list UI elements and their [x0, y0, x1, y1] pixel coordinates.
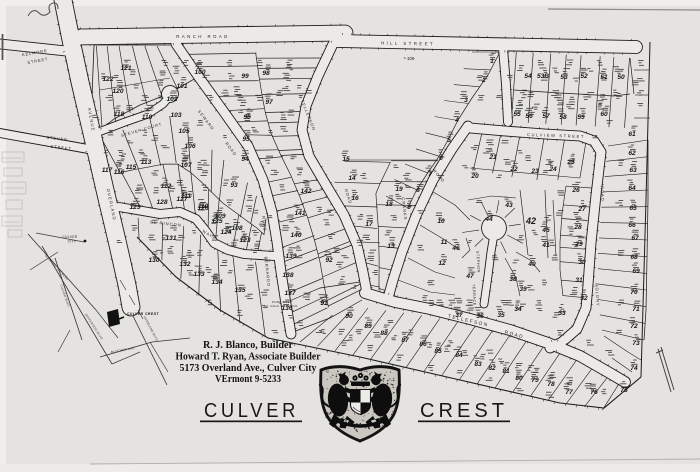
svg-text:103: 103	[170, 112, 181, 119]
svg-text:42: 42	[525, 216, 536, 226]
svg-text:35: 35	[497, 312, 505, 319]
svg-text:40: 40	[527, 261, 536, 268]
svg-text:33: 33	[558, 310, 566, 317]
svg-text:89: 89	[364, 323, 372, 330]
svg-text:26: 26	[571, 187, 580, 194]
svg-text:126: 126	[197, 205, 208, 212]
svg-text:38: 38	[509, 276, 517, 283]
svg-text:118: 118	[114, 111, 125, 118]
svg-text:139: 139	[285, 253, 296, 260]
svg-text:117: 117	[102, 167, 113, 174]
svg-text:27: 27	[577, 206, 586, 213]
svg-text:45: 45	[541, 227, 550, 234]
svg-text:70: 70	[630, 289, 638, 296]
svg-text:7: 7	[428, 171, 432, 178]
svg-text:8: 8	[416, 187, 420, 194]
svg-text:105: 105	[178, 128, 189, 135]
svg-text:132: 132	[179, 261, 190, 268]
svg-text:58: 58	[559, 114, 567, 121]
svg-text:99: 99	[241, 73, 249, 80]
svg-text:50: 50	[617, 74, 625, 81]
svg-text:HILL STREET: HILL STREET	[381, 41, 435, 47]
svg-text:9: 9	[407, 204, 411, 211]
svg-text:16: 16	[351, 195, 359, 202]
svg-text:65: 65	[629, 205, 637, 212]
svg-text:59: 59	[577, 114, 585, 121]
svg-text:CULVER: CULVER	[62, 235, 77, 239]
svg-text:127: 127	[176, 196, 187, 203]
svg-text:97: 97	[265, 99, 273, 106]
svg-text:88: 88	[380, 330, 388, 337]
svg-text:*-109: *-109	[404, 56, 415, 61]
svg-text:6: 6	[439, 155, 443, 162]
svg-text:54: 54	[524, 73, 532, 80]
svg-text:108: 108	[231, 225, 242, 232]
svg-text:121: 121	[120, 65, 131, 72]
svg-text:Howard T. Ryan, Associate Buil: Howard T. Ryan, Associate Builder	[176, 352, 321, 363]
svg-text:101: 101	[176, 83, 187, 90]
svg-text:115: 115	[126, 164, 137, 171]
svg-text:14: 14	[348, 175, 356, 182]
svg-text:VErmont 9-5233: VErmont 9-5233	[215, 374, 281, 385]
svg-text:131: 131	[165, 235, 176, 242]
svg-text:28: 28	[573, 224, 582, 231]
svg-text:57: 57	[542, 113, 550, 120]
svg-text:34: 34	[514, 306, 522, 313]
svg-text:137: 137	[284, 290, 295, 297]
svg-text:77: 77	[565, 389, 573, 396]
svg-text:CITY: CITY	[68, 240, 77, 244]
svg-text:52: 52	[580, 73, 588, 80]
svg-text:106: 106	[184, 143, 195, 150]
svg-text:78: 78	[547, 381, 555, 388]
svg-text:67: 67	[631, 235, 639, 242]
svg-text:80: 80	[515, 375, 523, 382]
svg-text:39: 39	[519, 286, 527, 293]
svg-text:107: 107	[180, 162, 191, 169]
svg-text:32: 32	[580, 295, 588, 302]
svg-text:18: 18	[385, 201, 393, 208]
svg-text:47: 47	[465, 273, 474, 280]
svg-text:93: 93	[230, 182, 238, 189]
svg-text:62: 62	[628, 150, 636, 157]
svg-text:98: 98	[262, 70, 270, 77]
svg-text:19: 19	[395, 186, 403, 193]
svg-text:11: 11	[441, 239, 448, 246]
svg-text:1: 1	[490, 58, 494, 65]
svg-text:56: 56	[525, 113, 533, 120]
svg-text:43: 43	[504, 202, 513, 209]
svg-text:CULVER: CULVER	[204, 400, 299, 422]
svg-text:10: 10	[437, 218, 445, 225]
svg-text:31: 31	[575, 277, 583, 284]
svg-text:96: 96	[243, 114, 251, 121]
svg-text:91: 91	[320, 300, 328, 307]
svg-text:66: 66	[628, 222, 636, 229]
svg-text:CREST: CREST	[420, 400, 508, 422]
svg-text:112: 112	[161, 183, 172, 190]
svg-text:83: 83	[474, 361, 482, 368]
svg-text:SO. CALIF. WATER CO.: SO. CALIF. WATER CO.	[264, 304, 299, 308]
svg-text:24: 24	[548, 166, 557, 173]
svg-text:85: 85	[434, 348, 442, 355]
svg-text:128: 128	[156, 199, 167, 206]
svg-text:123: 123	[239, 237, 250, 244]
svg-text:63: 63	[629, 167, 637, 174]
svg-text:140: 140	[290, 232, 301, 239]
svg-text:129: 129	[129, 204, 140, 211]
svg-text:64: 64	[628, 185, 636, 192]
svg-text:72: 72	[630, 323, 638, 330]
svg-text:23: 23	[530, 168, 539, 175]
svg-text:73: 73	[632, 340, 640, 347]
svg-text:3: 3	[464, 97, 468, 104]
svg-text:124: 124	[220, 229, 231, 236]
svg-text:20: 20	[470, 173, 479, 180]
svg-text:53B: 53B	[537, 73, 549, 80]
svg-text:21: 21	[488, 154, 497, 161]
svg-text:29: 29	[574, 241, 583, 248]
svg-text:134: 134	[211, 279, 222, 286]
svg-text:119: 119	[142, 114, 153, 121]
svg-text:4: 4	[454, 117, 459, 124]
svg-text:22: 22	[509, 166, 518, 173]
svg-text:122: 122	[102, 76, 113, 83]
svg-text:130: 130	[148, 257, 159, 264]
svg-text:142: 142	[300, 188, 311, 195]
svg-text:76: 76	[590, 389, 598, 396]
svg-text:92: 92	[325, 257, 333, 264]
svg-text:46: 46	[451, 245, 460, 252]
svg-text:71: 71	[632, 306, 640, 313]
svg-text:79: 79	[531, 377, 539, 384]
svg-text:74: 74	[630, 365, 638, 372]
svg-text:94: 94	[241, 156, 249, 163]
svg-text:133: 133	[193, 271, 204, 278]
svg-text:95: 95	[242, 136, 250, 143]
svg-text:75: 75	[620, 387, 628, 394]
svg-text:RANCH ROAD: RANCH ROAD	[176, 34, 230, 39]
svg-text:53: 53	[560, 74, 568, 81]
svg-text:61: 61	[628, 131, 636, 138]
svg-text:CULVER CREST: CULVER CREST	[127, 312, 160, 316]
svg-text:90: 90	[345, 313, 353, 320]
svg-text:55: 55	[513, 111, 521, 118]
svg-text:113: 113	[141, 159, 152, 166]
svg-text:R. J. Blanco, Builder: R. J. Blanco, Builder	[203, 340, 293, 351]
svg-text:37: 37	[455, 312, 463, 319]
svg-text:36: 36	[476, 313, 484, 320]
svg-text:5173 Overland Ave., Culver Cit: 5173 Overland Ave., Culver City	[180, 363, 318, 374]
svg-text:15: 15	[342, 156, 350, 163]
svg-text:30: 30	[578, 259, 586, 266]
svg-text:41: 41	[541, 242, 550, 249]
svg-text:116: 116	[114, 169, 125, 176]
svg-text:87: 87	[401, 337, 409, 344]
svg-text:81: 81	[502, 368, 510, 375]
svg-text:141: 141	[294, 210, 305, 217]
svg-text:82: 82	[488, 365, 496, 372]
svg-text:44: 44	[484, 216, 493, 223]
svg-text:120: 120	[112, 88, 123, 95]
svg-text:125: 125	[211, 218, 222, 225]
svg-text:84: 84	[455, 352, 463, 359]
svg-text:60: 60	[600, 111, 608, 118]
svg-text:5: 5	[447, 137, 451, 144]
svg-text:86: 86	[419, 341, 427, 348]
svg-text:102: 102	[166, 96, 177, 103]
svg-text:13: 13	[387, 243, 395, 250]
svg-text:25: 25	[566, 159, 575, 166]
svg-text:69: 69	[632, 268, 640, 275]
svg-text:17: 17	[365, 221, 373, 228]
svg-text:138: 138	[282, 272, 293, 279]
svg-text:12: 12	[438, 260, 446, 267]
svg-text:68: 68	[630, 254, 638, 261]
